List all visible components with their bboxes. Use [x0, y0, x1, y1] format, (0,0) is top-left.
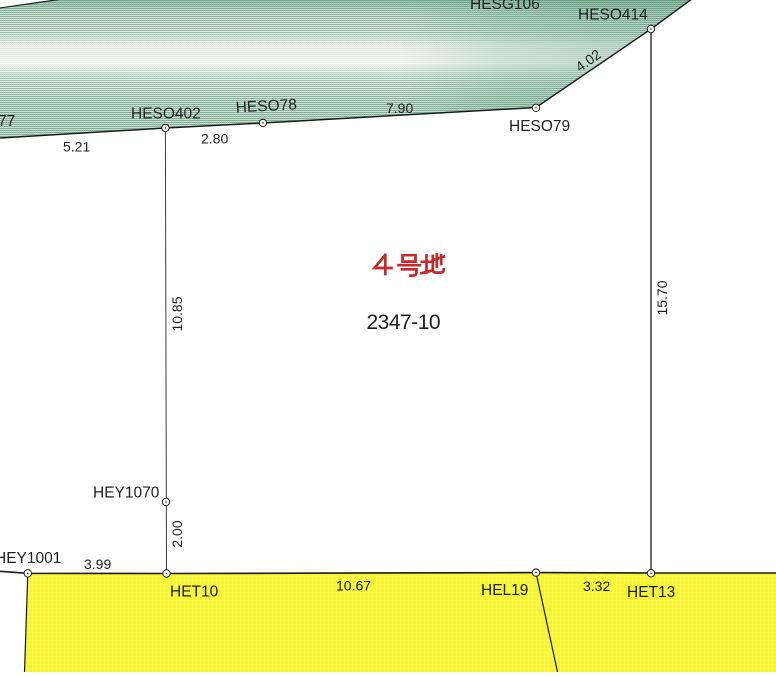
svg-text:HEL19: HEL19: [481, 582, 528, 599]
svg-text:10.85: 10.85: [169, 296, 185, 331]
svg-text:2347-10: 2347-10: [367, 311, 441, 334]
svg-text:15.70: 15.70: [654, 280, 670, 315]
svg-text:HESG106: HESG106: [470, 0, 540, 13]
svg-text:HET10: HET10: [170, 584, 219, 601]
svg-text:2.80: 2.80: [201, 131, 228, 147]
svg-text:10.67: 10.67: [336, 578, 371, 594]
svg-text:HEY1070: HEY1070: [93, 485, 160, 502]
svg-text:HESO79: HESO79: [509, 118, 570, 135]
svg-text:3.99: 3.99: [84, 556, 111, 572]
svg-text:HEY1001: HEY1001: [0, 550, 61, 567]
svg-text:HET13: HET13: [627, 584, 675, 601]
svg-text:3.32: 3.32: [583, 578, 610, 594]
svg-text:HESO402: HESO402: [131, 106, 201, 123]
svg-text:77: 77: [0, 113, 15, 130]
svg-text:7.90: 7.90: [386, 100, 413, 116]
svg-text:5.21: 5.21: [63, 139, 90, 155]
svg-text:HESO414: HESO414: [578, 7, 648, 24]
svg-text:2.00: 2.00: [169, 520, 185, 547]
svg-text:HESO78: HESO78: [235, 96, 297, 116]
